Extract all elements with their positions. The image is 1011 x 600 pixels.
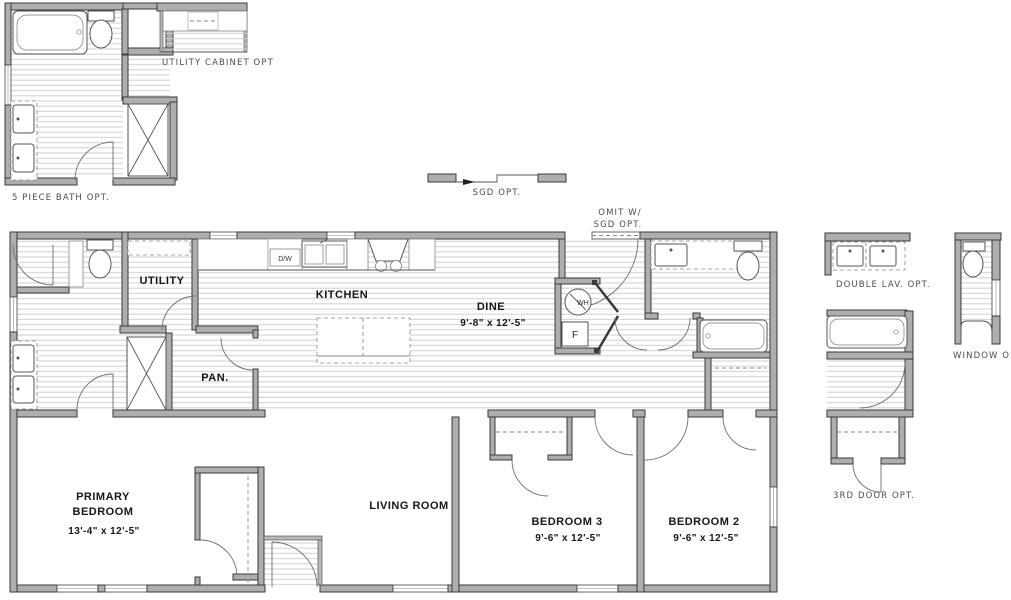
door-arc xyxy=(853,464,881,492)
interior-wall xyxy=(490,455,512,460)
interior-wall xyxy=(555,284,561,350)
tub-faucet-icon xyxy=(894,330,898,334)
room-label-primary-line1: PRIMARY xyxy=(76,491,130,503)
interior-wall xyxy=(488,410,595,417)
room-label-utility: UTILITY xyxy=(139,275,184,287)
wall xyxy=(955,233,1001,240)
exterior-wall xyxy=(10,232,210,239)
wall xyxy=(5,3,128,10)
sink-faucet-icon xyxy=(849,250,852,253)
interior-wall xyxy=(490,417,495,460)
sink xyxy=(870,246,896,266)
sink xyxy=(13,345,34,372)
interior-wall xyxy=(318,540,322,585)
sink-basin xyxy=(326,245,344,264)
exterior-wall xyxy=(320,585,393,592)
option-label-3rd-door: 3RD DOOR OPT. xyxy=(833,491,915,501)
interior-wall xyxy=(693,352,770,358)
interior-wall xyxy=(233,574,258,580)
sink-faucet-icon xyxy=(17,357,20,360)
wall xyxy=(122,55,128,100)
interior-wall xyxy=(645,313,658,319)
floor-plan-sheet: 5 PIECE BATH OPT. UTILITY CABINET OPT SG… xyxy=(0,0,1011,600)
wall xyxy=(827,352,913,359)
toilet-bowl xyxy=(89,250,111,278)
wall xyxy=(827,310,907,316)
kitchen-counter xyxy=(347,239,368,270)
room-label-dine: DINE xyxy=(477,301,505,313)
sink xyxy=(13,105,34,133)
floor-plan-drawing: 5 PIECE BATH OPT. UTILITY CABINET OPT SG… xyxy=(0,0,1011,600)
wall xyxy=(827,410,913,417)
wall xyxy=(160,11,163,52)
interior-wall xyxy=(253,369,258,410)
room-label-living: LIVING ROOM xyxy=(369,500,448,512)
toilet-bowl xyxy=(90,20,112,48)
option-label-double-lav: DOUBLE LAV. OPT. xyxy=(836,280,931,290)
interior-wall xyxy=(258,467,264,585)
furnace-label: F xyxy=(572,330,578,341)
interior-wall xyxy=(548,455,572,460)
callout-omit-with-sgd: OMIT W/ SGD OPT. xyxy=(594,208,643,230)
exterior-wall xyxy=(237,232,327,239)
hall-floor xyxy=(827,359,905,410)
interior-wall xyxy=(195,467,263,473)
interior-wall xyxy=(195,473,200,540)
exterior-wall xyxy=(640,232,777,239)
interior-wall xyxy=(196,326,258,333)
wall xyxy=(899,417,905,463)
sink-basin xyxy=(305,245,323,264)
interior-wall xyxy=(192,239,198,330)
sink xyxy=(13,376,34,403)
room-label-primary-line2: BEDROOM xyxy=(73,506,134,518)
tub-faucet-icon xyxy=(77,30,81,34)
wall xyxy=(831,417,837,463)
interior-wall xyxy=(688,410,723,417)
sink xyxy=(13,144,34,172)
exterior-wall xyxy=(147,585,265,592)
wall xyxy=(538,174,566,182)
room-dims-bedroom2: 9'-6" x 12'-5" xyxy=(673,533,738,544)
interior-wall xyxy=(756,410,777,417)
interior-wall xyxy=(253,330,258,338)
interior-wall xyxy=(559,239,565,279)
option-label-omit-line1: OMIT W/ xyxy=(598,208,641,218)
wall xyxy=(123,97,177,104)
exterior-wall xyxy=(355,232,565,239)
sink xyxy=(837,246,863,266)
sink xyxy=(655,244,687,266)
linen-closet xyxy=(69,241,83,287)
interior-wall xyxy=(637,417,644,592)
interior-wall xyxy=(264,536,322,540)
option-label-5-piece-bath: 5 PIECE BATH OPT. xyxy=(12,193,110,203)
wall xyxy=(825,233,910,241)
detail-3rd-door: 3RD DOOR OPT. xyxy=(827,310,915,501)
interior-wall xyxy=(633,410,645,417)
detail-sgd: SGD OPT. xyxy=(428,174,566,198)
optional-cabinet xyxy=(128,241,190,255)
option-label-omit-line2: SGD OPT. xyxy=(594,220,643,230)
dishwasher-label: D/W xyxy=(278,256,292,263)
interior-wall xyxy=(17,287,69,293)
exterior-wall xyxy=(98,585,105,592)
wall xyxy=(170,102,177,180)
bathtub-corner xyxy=(961,321,992,344)
sink-faucet-icon xyxy=(882,250,885,253)
wall xyxy=(905,359,913,417)
interior-wall xyxy=(645,239,651,313)
wall xyxy=(157,3,247,11)
wall xyxy=(992,316,1000,344)
room-label-kitchen: KITCHEN xyxy=(316,289,368,301)
option-label-utility-cabinet: UTILITY CABINET OPT xyxy=(162,58,274,68)
bathtub-basin xyxy=(17,15,83,50)
wall xyxy=(5,105,11,185)
sink-faucet-icon xyxy=(17,118,20,121)
wall xyxy=(113,178,175,185)
exterior-wall xyxy=(770,232,777,487)
interior-wall xyxy=(705,358,711,410)
toilet-tank xyxy=(87,240,113,250)
sink-faucet-icon xyxy=(17,157,20,160)
kitchen-counter xyxy=(409,239,435,270)
hinge-block xyxy=(594,348,599,353)
interior-wall xyxy=(567,417,572,460)
toilet-bowl xyxy=(737,252,759,280)
floor xyxy=(163,31,247,52)
room-dims-dine: 9'-8" x 12'-5" xyxy=(460,318,525,329)
main-plan: D/W WH F xyxy=(10,232,777,592)
detail-window-opt: WINDOW OPT. xyxy=(953,233,1011,361)
detail-utility-cabinet: UTILITY CABINET OPT xyxy=(157,3,274,68)
door-arc xyxy=(512,460,548,496)
sink-faucet-icon xyxy=(670,249,673,252)
room-dims-bedroom3: 9'-6" x 12'-5" xyxy=(535,533,600,544)
option-label-sgd: SGD OPT. xyxy=(473,188,522,198)
door-arc xyxy=(595,417,633,455)
wall xyxy=(122,9,128,54)
kitchen-counter xyxy=(198,239,268,270)
interior-wall xyxy=(555,348,600,354)
toilet-tank xyxy=(734,241,762,251)
interior-wall xyxy=(17,410,77,417)
wall xyxy=(5,3,11,65)
door-arc xyxy=(723,417,756,450)
door-arc xyxy=(645,417,688,460)
tub-faucet-icon xyxy=(706,334,710,338)
door-arc xyxy=(200,540,237,577)
room-label-pantry: PAN. xyxy=(201,372,228,384)
room-label-bedroom2: BEDROOM 2 xyxy=(668,516,739,528)
wall xyxy=(831,458,853,464)
interior-wall xyxy=(452,417,459,592)
wall xyxy=(881,458,905,464)
toilet-tank xyxy=(963,242,985,251)
wall xyxy=(955,240,961,344)
interior-wall xyxy=(166,333,172,410)
water-heater-label: WH xyxy=(577,300,589,307)
interior-wall xyxy=(122,232,128,330)
hinge-block xyxy=(592,280,597,285)
interior-wall xyxy=(195,577,200,585)
bathtub-basin xyxy=(830,319,904,345)
exterior-wall xyxy=(448,585,577,592)
room-label-bedroom3: BEDROOM 3 xyxy=(531,516,602,528)
arrow-icon xyxy=(463,179,475,185)
room-dims-primary: 13'-4" x 12'-5" xyxy=(68,526,139,537)
exterior-wall xyxy=(10,232,17,297)
wall xyxy=(825,241,831,275)
detail-double-lav: DOUBLE LAV. OPT. xyxy=(825,233,931,290)
toilet-bowl xyxy=(963,251,983,277)
sink-faucet-icon xyxy=(17,388,20,391)
wall xyxy=(428,174,456,182)
interior-wall xyxy=(113,410,265,417)
bathtub-basin xyxy=(703,323,764,349)
exterior-wall xyxy=(770,527,777,592)
option-label-window: WINDOW OPT. xyxy=(953,351,1011,361)
detail-5-piece-bath: 5 PIECE BATH OPT. xyxy=(5,3,177,203)
interior-wall xyxy=(120,326,166,333)
wall xyxy=(992,240,1000,280)
